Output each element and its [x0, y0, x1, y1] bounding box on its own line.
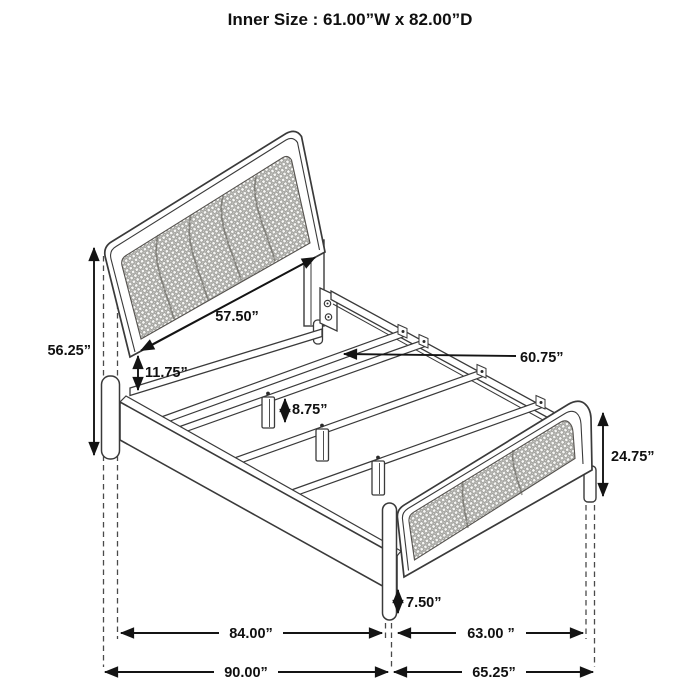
- dimension-label-headboard-height: 56.25”: [47, 343, 91, 359]
- dimension-label-footboard-span: 63.00 ”: [467, 626, 515, 642]
- dimension-label-footboard-leg: 7.50”: [406, 595, 441, 611]
- page-title: Inner Size : 61.00”W x 82.00”D: [228, 10, 473, 29]
- support-leg-3: [372, 461, 385, 495]
- dimension-diagram-page: Inner Size : 61.00”W x 82.00”D: [0, 0, 700, 700]
- dimension-label-rail-span: 84.00”: [229, 626, 273, 642]
- headboard-left-post: [102, 376, 120, 459]
- dimension-label-overall-depth: 90.00”: [224, 665, 268, 681]
- dimension-label-support-leg: 8.75”: [292, 402, 327, 418]
- dimension-label-slat-length: 60.75”: [520, 350, 564, 366]
- dimension-leader-slat-length: [344, 354, 516, 356]
- dimension-label-footboard-height: 24.75”: [611, 449, 655, 465]
- footboard-near-post: [383, 503, 397, 620]
- dimension-label-headboard-clearance: 11.75”: [145, 365, 188, 381]
- support-leg-2: [316, 429, 329, 461]
- support-leg-1: [262, 397, 275, 428]
- footboard: [383, 401, 597, 620]
- dimension-label-headboard-rail: 57.50”: [215, 309, 259, 325]
- extension-lines-left: [104, 256, 118, 667]
- dimension-label-overall-width: 65.25”: [472, 665, 516, 681]
- bed-frame-diagram: Inner Size : 61.00”W x 82.00”D: [0, 0, 700, 700]
- near-side-rail: [120, 396, 401, 594]
